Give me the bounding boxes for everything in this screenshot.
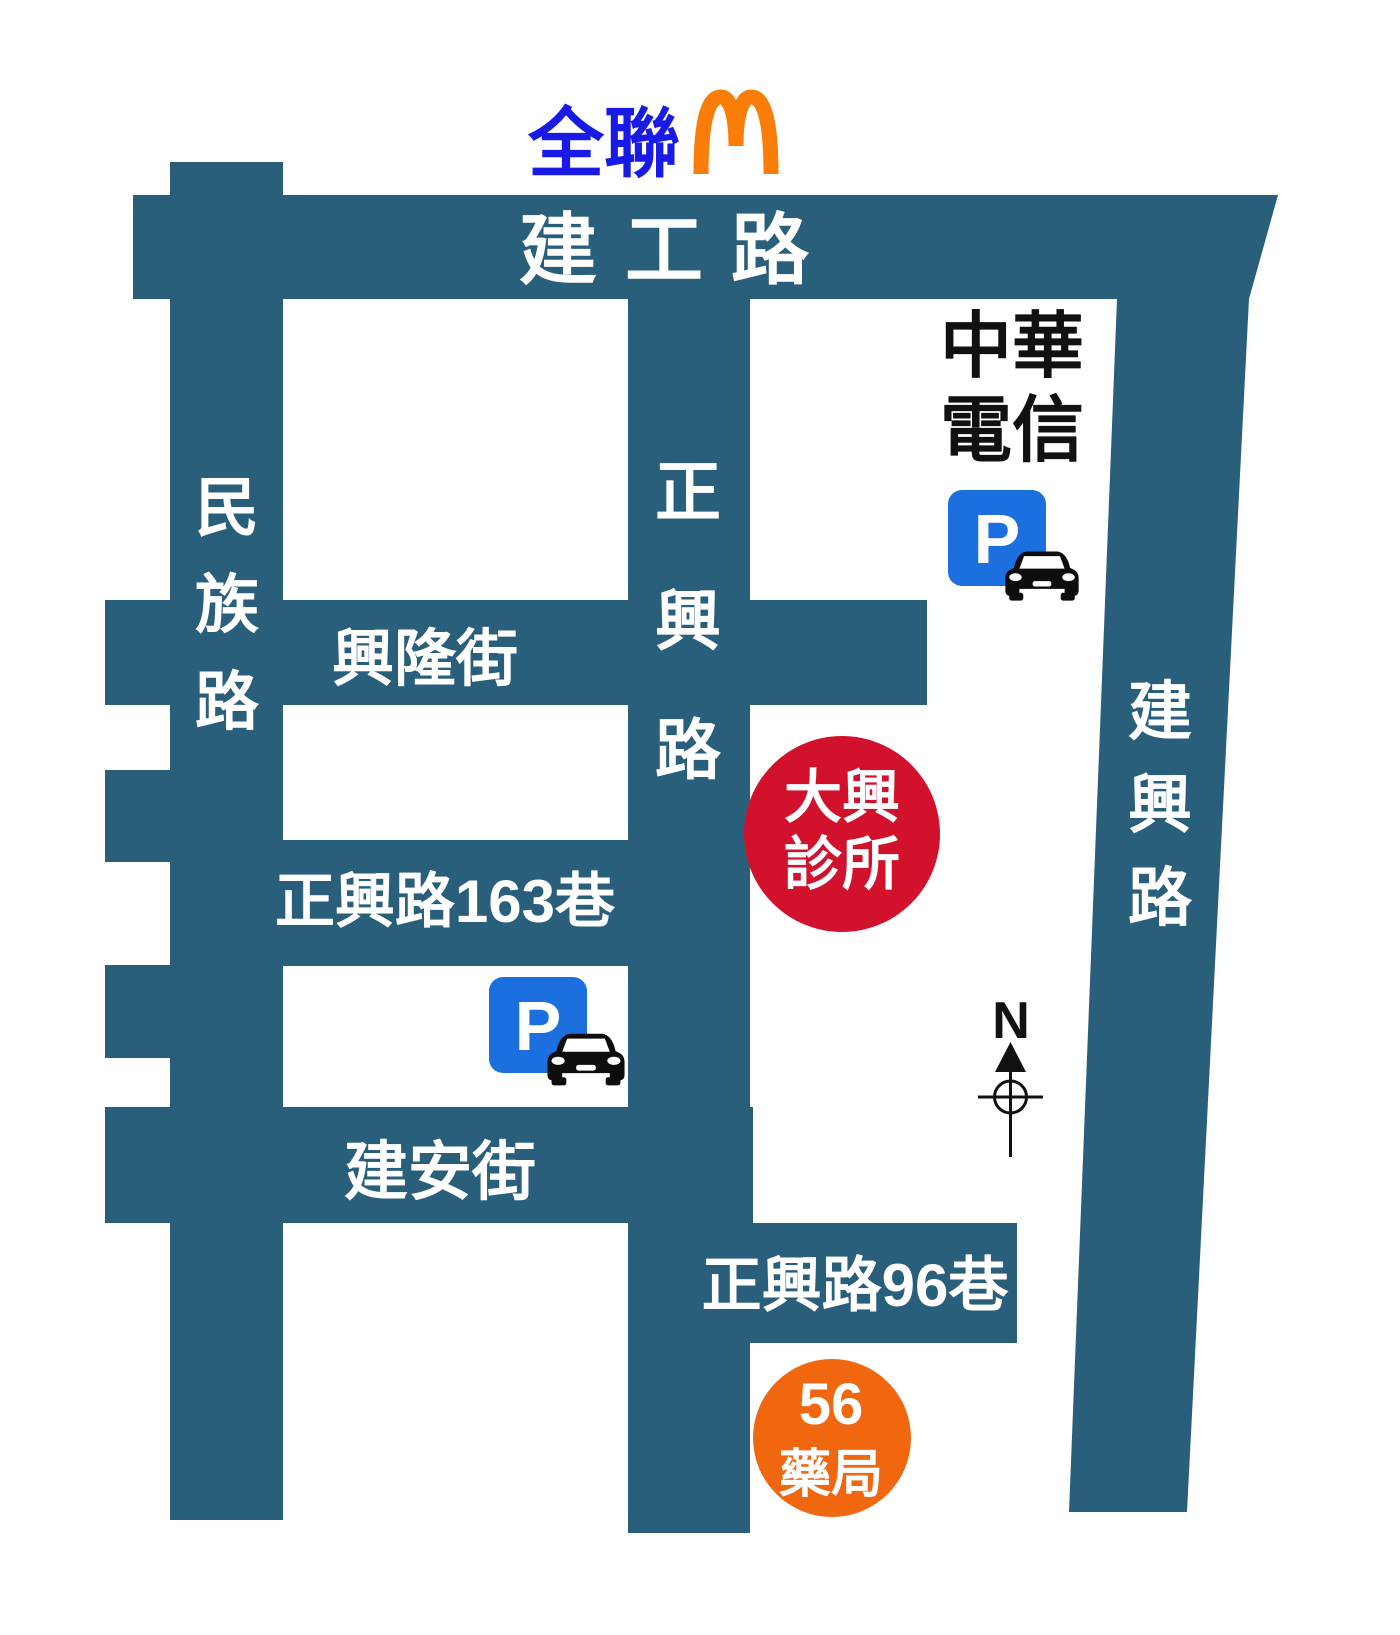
- chunghwa-line2: 電信: [940, 391, 1084, 471]
- compass-north-indicator: N: [978, 992, 1043, 1157]
- road-label-minzu: 民族路: [195, 472, 260, 738]
- daxing-clinic-marker: 大興 診所: [744, 736, 940, 932]
- clinic-line2: 診所: [784, 832, 900, 897]
- road-stub-left-2: [105, 965, 171, 1058]
- road-label-zhengxing: 正興路: [655, 455, 722, 787]
- pharmacy-line2: 藥局: [779, 1446, 883, 1504]
- pxmart-label: 全聯: [527, 102, 680, 187]
- clinic-line1: 大興: [784, 765, 900, 830]
- parking-sign-jianan: P: [489, 977, 625, 1085]
- mcdonalds-icon: [701, 97, 771, 174]
- road-label-lane96: 正興路96巷: [702, 1252, 1010, 1319]
- chunghwa-telecom-label: 中華 電信: [940, 307, 1084, 471]
- street-map: 建工路 民族路 正興路 建興路 興隆街 正興路163巷 建安街 正興路96巷 全…: [0, 0, 1400, 1635]
- parking-sign-chunghwa: P: [948, 490, 1079, 601]
- road-label-jianxing: 建興路: [1128, 676, 1193, 934]
- compass-n-label: N: [992, 992, 1030, 1050]
- roads-layer: [105, 162, 1278, 1533]
- pharmacy-56-marker: 56 藥局: [753, 1359, 911, 1517]
- chunghwa-line1: 中華: [940, 307, 1084, 387]
- road-stub-left-1: [105, 770, 171, 862]
- road-label-xinglong: 興隆街: [332, 625, 518, 694]
- road-label-lane163: 正興路163巷: [275, 868, 616, 935]
- road-label-jianan: 建安街: [344, 1136, 536, 1208]
- parking-letter: P: [974, 500, 1021, 578]
- road-label-jiangong: 建工路: [519, 206, 837, 294]
- pharmacy-line1: 56: [799, 1372, 864, 1437]
